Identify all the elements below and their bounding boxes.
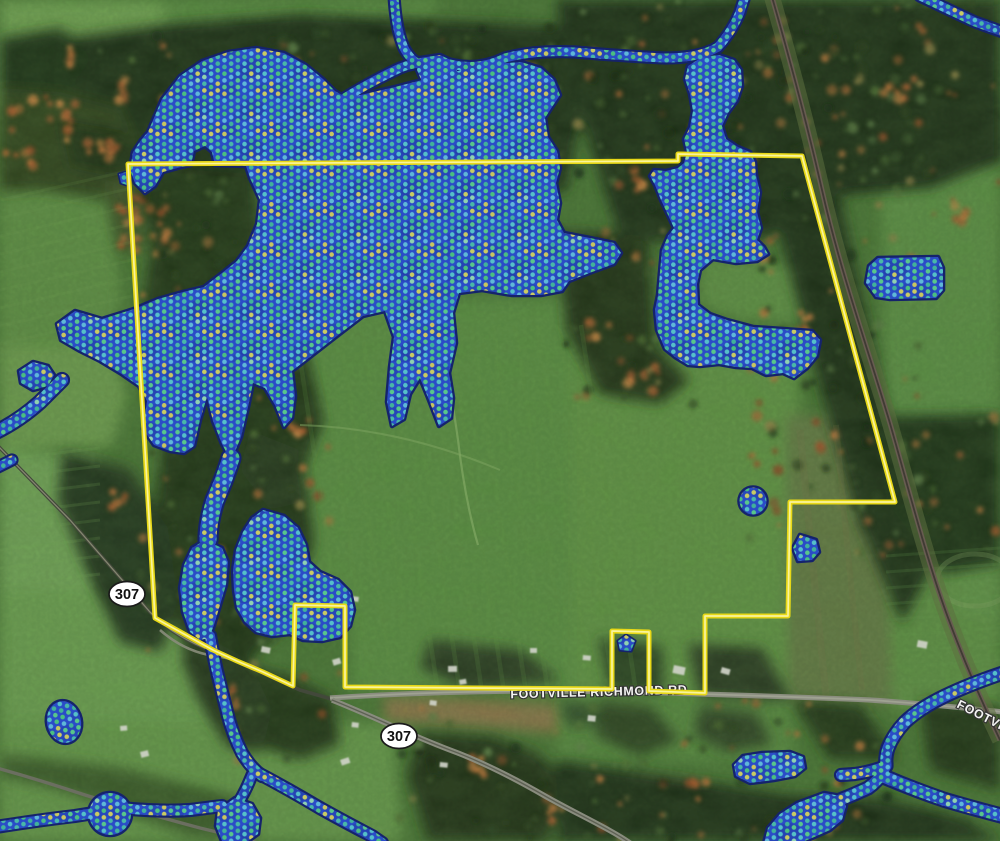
svg-text:307: 307 (115, 587, 139, 603)
svg-text:307: 307 (387, 729, 411, 745)
